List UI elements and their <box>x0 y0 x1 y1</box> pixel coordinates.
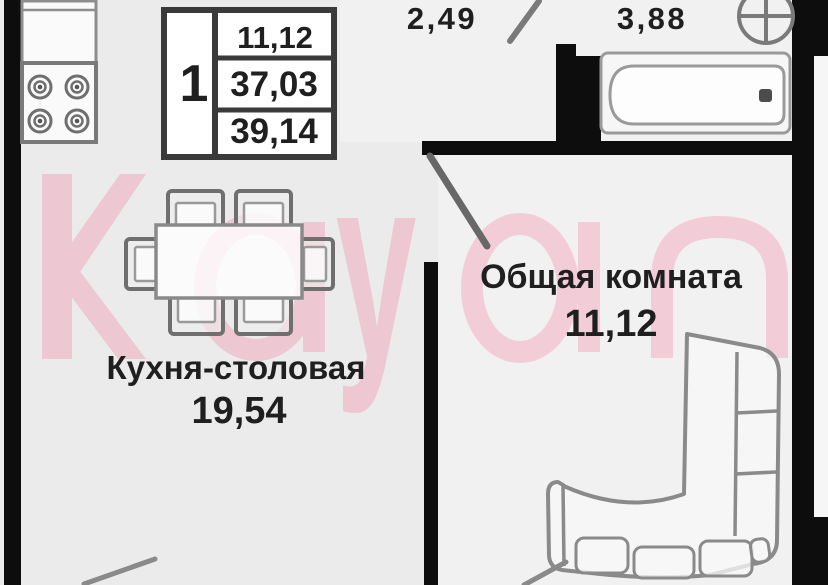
svg-text:39,14: 39,14 <box>230 112 318 151</box>
svg-text:Кухня-столовая: Кухня-столовая <box>107 349 366 386</box>
svg-text:11,12: 11,12 <box>237 20 313 55</box>
svg-text:19,54: 19,54 <box>191 390 286 432</box>
svg-text:11,12: 11,12 <box>565 303 658 345</box>
svg-text:1: 1 <box>180 55 209 113</box>
svg-text:2,49: 2,49 <box>407 1 477 36</box>
svg-text:3,88: 3,88 <box>617 1 687 36</box>
svg-text:37,03: 37,03 <box>230 65 318 104</box>
svg-text:Общая комната: Общая комната <box>480 258 743 296</box>
